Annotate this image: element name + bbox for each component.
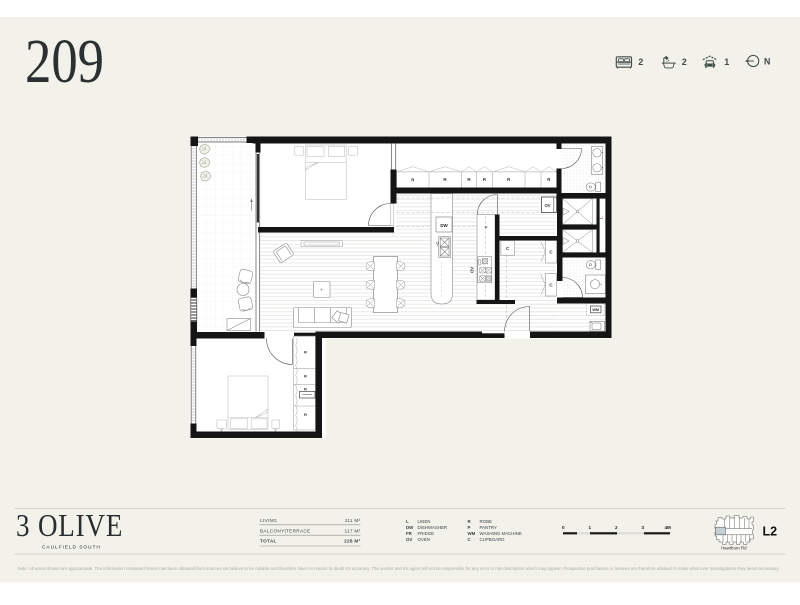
svg-text:CAULFIELD SOUTH: CAULFIELD SOUTH (42, 544, 101, 550)
svg-text:R: R (304, 350, 307, 355)
svg-text:111 M²: 111 M² (345, 518, 361, 523)
svg-text:1: 1 (724, 57, 729, 67)
svg-text:2: 2 (682, 57, 687, 67)
svg-text:FR: FR (406, 531, 413, 536)
svg-text:WM: WM (592, 308, 599, 312)
svg-text:TOTAL: TOTAL (260, 538, 277, 543)
svg-text:DW: DW (440, 223, 448, 228)
svg-text:2: 2 (615, 525, 618, 530)
svg-text:3 OLIVE: 3 OLIVE (16, 509, 123, 544)
svg-text:LIVING: LIVING (260, 518, 277, 523)
svg-text:228 M²: 228 M² (344, 538, 361, 543)
svg-text:OV: OV (406, 537, 412, 542)
svg-text:DW: DW (406, 525, 414, 530)
svg-text:DISHWASHER: DISHWASHER (418, 525, 448, 530)
svg-text:OVEN: OVEN (418, 537, 430, 542)
svg-text:WASHING MACHINE: WASHING MACHINE (480, 531, 522, 536)
svg-text:OV: OV (470, 267, 475, 273)
svg-text:3: 3 (642, 525, 645, 530)
svg-text:F: F (485, 225, 488, 230)
svg-text:OV: OV (544, 203, 550, 208)
svg-text:L: L (406, 519, 409, 524)
svg-text:R: R (304, 412, 307, 417)
svg-text:0: 0 (562, 525, 565, 530)
svg-text:Hawthorn Rd: Hawthorn Rd (721, 546, 747, 551)
svg-text:ROBE: ROBE (480, 519, 493, 524)
svg-text:1: 1 (589, 525, 592, 530)
svg-text:L2: L2 (763, 525, 778, 539)
svg-text:LINEN: LINEN (418, 519, 431, 524)
svg-text:4M: 4M (665, 525, 672, 530)
svg-text:CUPBOARD: CUPBOARD (480, 537, 505, 542)
svg-text:FRIDGE: FRIDGE (418, 531, 435, 536)
svg-text:BALCONY|TERRACE: BALCONY|TERRACE (260, 528, 311, 533)
svg-text:PANTRY: PANTRY (480, 525, 497, 530)
svg-text:WM: WM (468, 531, 476, 536)
svg-text:R: R (304, 387, 307, 392)
svg-text:Note: All areas shown are appr: Note: All areas shown are approximate. T… (18, 566, 780, 571)
svg-text:2: 2 (638, 57, 643, 67)
svg-text:209: 209 (25, 28, 104, 96)
svg-text:117 M²: 117 M² (344, 528, 360, 533)
svg-text:N: N (764, 56, 770, 66)
svg-text:R: R (304, 374, 307, 379)
svg-text:P: P (468, 525, 471, 530)
